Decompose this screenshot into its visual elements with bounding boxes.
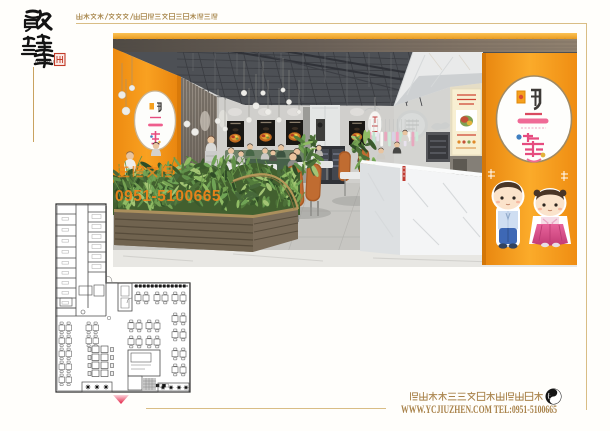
svg-text:WWW.YCJIUZHEN.COM TEL:0951-51: WWW.YCJIUZHEN.COM TEL:0951-5100665 <box>401 404 557 416</box>
